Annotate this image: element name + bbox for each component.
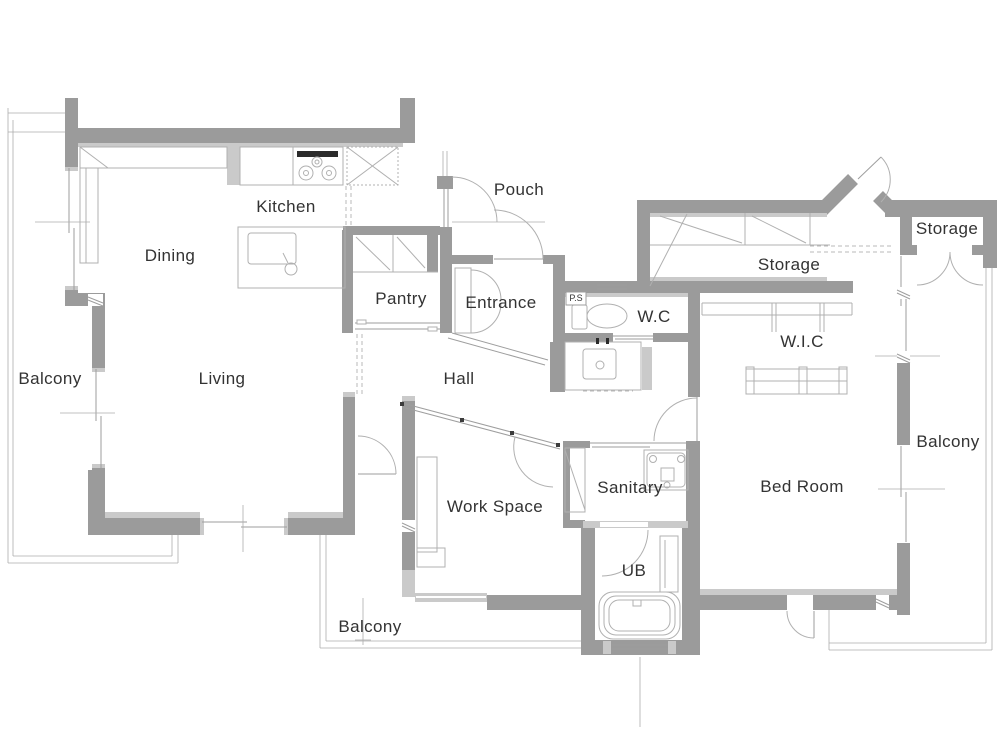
room-label-ub: UB bbox=[622, 561, 646, 581]
kitchen-counter bbox=[240, 147, 293, 185]
pouch-side-door-arc bbox=[452, 177, 497, 222]
living-passage-door-arc bbox=[358, 436, 396, 474]
room-label-storage-small: Storage bbox=[916, 219, 978, 239]
side-board bbox=[80, 168, 98, 263]
room-label-ps: P.S bbox=[569, 293, 582, 303]
desk bbox=[417, 457, 445, 567]
room-label-living: Living bbox=[199, 369, 246, 389]
room-label-hall: Hall bbox=[444, 369, 475, 389]
room-label-balcony-right: Balcony bbox=[916, 432, 979, 452]
hanging-rods bbox=[702, 303, 852, 394]
room-label-storage-main: Storage bbox=[758, 255, 820, 275]
room-label-balcony-bottom: Balcony bbox=[338, 617, 401, 637]
bathtub bbox=[599, 592, 680, 639]
windows-layer bbox=[35, 167, 945, 649]
washbasin bbox=[565, 338, 641, 390]
room-label-wc: W.C bbox=[637, 307, 670, 327]
island-counter bbox=[238, 227, 345, 288]
bedroom-balcony-door-arc bbox=[787, 611, 814, 638]
wall-closet bbox=[80, 147, 227, 168]
storage-shelf-diagonal bbox=[650, 214, 687, 286]
ub-counter bbox=[660, 536, 678, 592]
room-label-wic: W.I.C bbox=[780, 332, 824, 352]
room-label-dining: Dining bbox=[145, 246, 196, 266]
small-storage-door-left-arc bbox=[917, 252, 950, 285]
work-space-door-arc bbox=[514, 437, 553, 487]
room-label-balcony-left: Balcony bbox=[18, 369, 81, 389]
room-label-work-space: Work Space bbox=[447, 497, 543, 517]
wall-linings bbox=[78, 143, 897, 654]
entrance-door-arc bbox=[494, 210, 543, 259]
room-label-pantry: Pantry bbox=[375, 289, 427, 309]
room-label-entrance: Entrance bbox=[465, 293, 536, 313]
room-label-kitchen: Kitchen bbox=[256, 197, 316, 217]
fixtures-layer bbox=[80, 147, 852, 639]
room-label-sanitary: Sanitary bbox=[597, 478, 663, 498]
toilet bbox=[572, 304, 627, 329]
floor-plan-drawing bbox=[0, 0, 1000, 735]
balcony-outline bbox=[8, 108, 992, 727]
room-label-pouch: Pouch bbox=[494, 180, 544, 200]
room-label-bedroom: Bed Room bbox=[760, 477, 844, 497]
bedroom-hall-door-arc bbox=[654, 398, 697, 441]
kitchen-sink bbox=[248, 233, 296, 264]
floor-plan: Dining Kitchen Pantry Pouch Entrance Hal… bbox=[0, 0, 1000, 735]
small-storage-door-right-arc bbox=[950, 252, 983, 285]
